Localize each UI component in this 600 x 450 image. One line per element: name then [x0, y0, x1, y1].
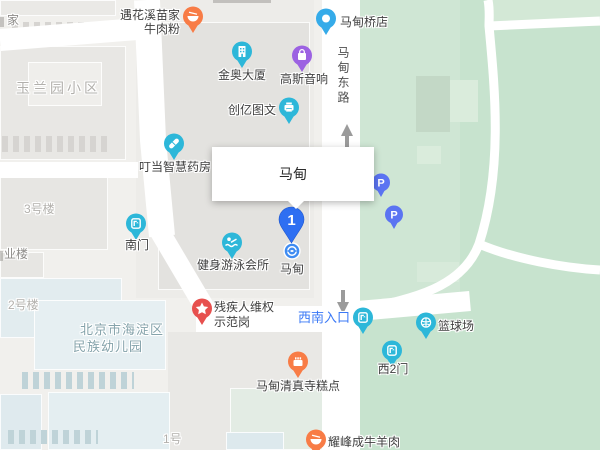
road-label-madiandonglu: 马甸东路 — [335, 46, 352, 106]
shopping-bag-icon — [292, 46, 312, 73]
gate-label-south[interactable]: 南门 — [125, 238, 149, 252]
gate-icon — [126, 214, 146, 241]
poi-marker-beef-noodle[interactable] — [182, 6, 204, 34]
svg-text:1: 1 — [287, 212, 295, 229]
poi-label-print-shop[interactable]: 创亿图文 — [228, 103, 276, 117]
poi-marker-pharmacy[interactable] — [163, 133, 185, 161]
metro-station-icon[interactable] — [283, 242, 301, 260]
parking-icon: P — [385, 206, 403, 230]
parking-marker-1[interactable]: P — [371, 173, 391, 199]
poi-label-gym-swim[interactable]: 健身游泳会所 — [197, 258, 269, 272]
pin-dot-icon — [316, 9, 336, 36]
parking-marker-2[interactable]: P — [384, 205, 404, 231]
poi-label-pharmacy[interactable]: 叮当智慧药房 — [139, 160, 211, 174]
pill-icon — [164, 134, 184, 161]
gate-label-west2[interactable]: 西2门 — [378, 362, 409, 376]
building-icon — [232, 42, 252, 69]
clipped-char-fragment — [0, 17, 4, 27]
poi-marker-lamb-shop[interactable] — [305, 429, 327, 450]
bowl-icon — [183, 7, 203, 34]
park-lawn — [487, 0, 600, 26]
svg-text:P: P — [390, 210, 397, 222]
cake-icon — [288, 352, 308, 379]
popup-title: 马甸 — [279, 164, 307, 184]
basketball-icon — [416, 313, 436, 340]
building-windows — [12, 22, 120, 38]
poi-label-jinao[interactable]: 金奥大厦 — [218, 68, 266, 82]
poi-marker-basketball[interactable] — [415, 312, 437, 340]
poi-marker-bridge-shop[interactable] — [315, 8, 337, 36]
poi-marker-print-shop[interactable] — [278, 97, 300, 125]
building-windows — [2, 136, 112, 152]
park-lawn — [417, 262, 459, 282]
poi-marker-bakery[interactable] — [287, 351, 309, 379]
clipped-char-fragment — [0, 251, 3, 261]
poi-label-beef-noodle[interactable]: 遇花溪苗家 牛肉粉 — [108, 8, 180, 36]
poi-marker-gym-swim[interactable] — [221, 232, 243, 260]
gate-icon — [353, 308, 373, 335]
station-label-madian[interactable]: 马甸 — [280, 262, 304, 276]
gate-marker-south[interactable] — [125, 213, 147, 241]
park-building — [416, 76, 450, 132]
poi-marker-gauss-audio[interactable] — [291, 45, 313, 73]
swimmer-icon — [222, 233, 242, 260]
poi-marker-rights-post[interactable] — [191, 298, 213, 326]
popup-pointer — [288, 201, 304, 209]
printer-icon — [279, 98, 299, 125]
park-area — [460, 0, 600, 450]
area-label-jia: 家 — [7, 13, 19, 27]
poi-label-rights-post[interactable]: 残疾人维权 示范岗 — [214, 300, 274, 330]
numbered-pin-icon: 1 — [279, 207, 304, 243]
arrow-up-icon — [341, 124, 353, 149]
building-windows — [22, 372, 134, 389]
area-label-building3: 3号楼 — [24, 202, 55, 216]
clipped-label-fragment — [213, 0, 271, 3]
place-popup[interactable]: 马甸 — [212, 147, 374, 201]
map-canvas[interactable]: 家 玉兰园小区 3号楼 业楼 2号楼 1号 北京市海淀区 民族幼儿园 马甸东路 … — [0, 0, 600, 450]
poi-label-bridge-shop[interactable]: 马甸桥店 — [340, 15, 388, 29]
poi-label-gauss-audio[interactable]: 高斯音响 — [280, 72, 328, 86]
poi-label-basketball[interactable]: 篮球场 — [438, 319, 474, 333]
area-label-kindergarten-line2: 民族幼儿园 — [73, 340, 143, 354]
poi-label-bakery[interactable]: 马甸清真寺糕点 — [256, 379, 340, 393]
bowl-icon — [306, 430, 326, 450]
area-label-building2: 2号楼 — [8, 298, 39, 312]
poi-marker-jinao[interactable] — [231, 41, 253, 69]
area-label-building1: 1号 — [163, 432, 182, 446]
area-label-yulanyuan: 玉兰园小区 — [16, 81, 101, 95]
area-label-yelou: 业楼 — [4, 247, 28, 261]
area-label-kindergarten-line1: 北京市海淀区 — [80, 323, 164, 337]
building-windows — [8, 430, 98, 444]
svg-text:P: P — [377, 178, 384, 190]
gate-marker-southwest[interactable] — [352, 307, 374, 335]
selected-pin-1[interactable]: 1 — [278, 206, 305, 244]
parking-icon: P — [372, 174, 390, 198]
building — [226, 432, 284, 450]
poi-label-lamb-shop[interactable]: 耀峰成牛羊肉 — [328, 435, 400, 449]
park-lawn — [417, 146, 441, 164]
star-icon — [192, 299, 212, 326]
gate-label-southwest[interactable]: 西南入口 — [298, 311, 350, 325]
